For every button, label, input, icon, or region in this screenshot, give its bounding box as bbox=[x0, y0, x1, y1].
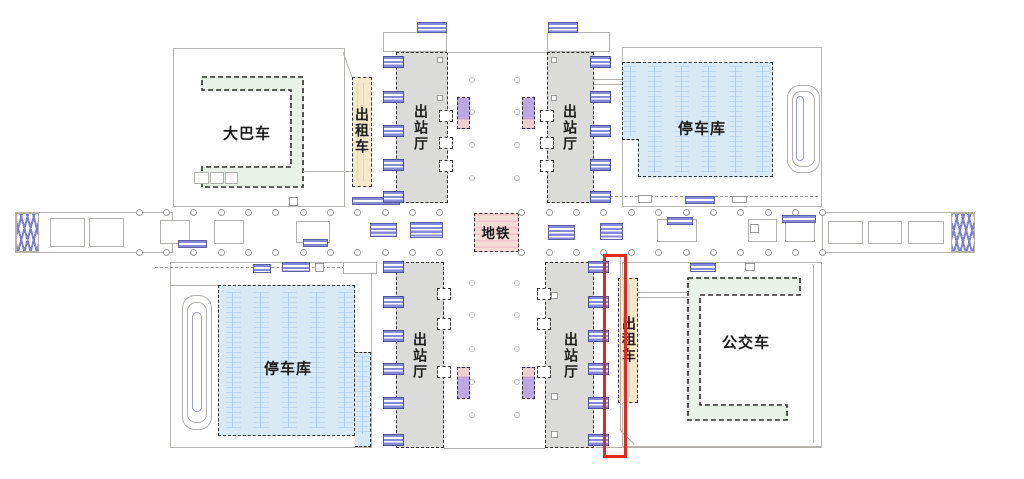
room bbox=[225, 172, 238, 184]
escalator-fixture-icon bbox=[410, 222, 443, 238]
escalator-fixture-icon bbox=[685, 196, 715, 204]
small-cabinet bbox=[551, 292, 558, 299]
stair-shaft bbox=[457, 97, 470, 129]
column-dot bbox=[136, 249, 143, 256]
column-dot bbox=[163, 209, 170, 216]
wall-line bbox=[638, 292, 688, 293]
label-metro: 地铁 bbox=[482, 222, 511, 242]
parking-stalls bbox=[310, 292, 325, 428]
stair-shaft bbox=[522, 367, 535, 399]
ramp-top-right bbox=[787, 85, 820, 173]
column-dot bbox=[546, 209, 553, 216]
column-dot bbox=[272, 209, 279, 216]
room bbox=[50, 218, 85, 247]
wall-notch bbox=[537, 288, 551, 300]
column-dot bbox=[190, 249, 197, 256]
column-dot bbox=[683, 209, 690, 216]
fare-gate-icon bbox=[383, 434, 404, 446]
ramp-bottom-left bbox=[182, 295, 212, 430]
fare-gate-icon bbox=[383, 363, 404, 375]
ramp-core bbox=[796, 96, 804, 161]
column-dot bbox=[354, 209, 361, 216]
parking-stalls bbox=[729, 66, 743, 173]
wall-notch bbox=[437, 288, 451, 300]
stair-shaft bbox=[457, 367, 470, 399]
fare-gate-icon bbox=[590, 191, 611, 203]
column-dot bbox=[573, 209, 580, 216]
column-dot bbox=[628, 209, 635, 216]
label-exit-hall-top-left: 出站厅 bbox=[411, 104, 431, 152]
wall-notch bbox=[437, 318, 451, 330]
column-dot bbox=[300, 209, 307, 216]
label-exit-hall-bottom-left: 出站厅 bbox=[410, 332, 430, 380]
column-dot bbox=[546, 249, 553, 256]
column-dot bbox=[436, 249, 443, 256]
column-dot bbox=[600, 209, 607, 216]
column-dot bbox=[272, 249, 279, 256]
column-dot bbox=[655, 249, 662, 256]
column-dot bbox=[819, 249, 826, 256]
column-dot bbox=[327, 209, 334, 216]
label-parking-top-right: 停车库 bbox=[678, 118, 726, 139]
room bbox=[89, 218, 124, 247]
column-dot bbox=[245, 209, 252, 216]
column-dot bbox=[218, 249, 225, 256]
ramp-core bbox=[192, 312, 202, 412]
wall-notch bbox=[537, 318, 551, 330]
column-dot bbox=[514, 379, 520, 385]
room bbox=[210, 172, 224, 184]
room bbox=[828, 221, 863, 244]
column-dot bbox=[163, 249, 170, 256]
escalator-zigzag-west-icon bbox=[16, 213, 39, 252]
wall-notch bbox=[439, 110, 453, 122]
column-dot bbox=[382, 209, 389, 216]
wall-notch bbox=[537, 366, 551, 378]
column-dot bbox=[514, 142, 520, 148]
fare-gate-icon bbox=[383, 296, 404, 308]
wall-line bbox=[170, 285, 218, 286]
column-dot bbox=[514, 77, 520, 83]
label-exit-hall-top-right: 出站厅 bbox=[560, 104, 580, 152]
column-dot bbox=[514, 346, 520, 352]
column-dot bbox=[514, 412, 520, 418]
small-cabinet bbox=[638, 195, 652, 203]
fare-gate-icon bbox=[383, 397, 404, 409]
small-cabinet bbox=[551, 95, 557, 101]
wall-line bbox=[594, 84, 622, 85]
small-cabinet bbox=[437, 57, 443, 63]
column-dot bbox=[469, 175, 475, 181]
room bbox=[383, 32, 447, 52]
column-dot bbox=[136, 209, 143, 216]
column-dot bbox=[792, 249, 799, 256]
fare-gate-icon bbox=[590, 56, 611, 68]
column-dot bbox=[409, 249, 416, 256]
label-bus: 公交车 bbox=[722, 332, 770, 353]
small-cabinet bbox=[315, 263, 324, 272]
wall-line bbox=[596, 447, 822, 448]
wall-notch bbox=[540, 137, 554, 149]
column-dot bbox=[683, 249, 690, 256]
parking-stalls bbox=[756, 66, 770, 173]
escalator-zigzag-east-icon bbox=[951, 213, 975, 252]
fare-gate-icon bbox=[383, 261, 404, 273]
room bbox=[343, 262, 377, 274]
room bbox=[908, 221, 944, 244]
fare-gate-icon bbox=[383, 125, 404, 137]
fare-gate-icon bbox=[383, 191, 404, 203]
small-cabinet bbox=[437, 95, 443, 101]
fare-gate-icon bbox=[383, 91, 404, 103]
column-dot bbox=[300, 249, 307, 256]
label-coach: 大巴车 bbox=[223, 123, 271, 144]
label-exit-hall-bottom-right: 出站厅 bbox=[561, 332, 581, 380]
column-dot bbox=[518, 249, 525, 256]
small-cabinet bbox=[289, 197, 298, 206]
wall-line bbox=[447, 52, 547, 53]
escalator-fixture-icon bbox=[282, 262, 310, 272]
column-dot bbox=[469, 412, 475, 418]
wall-notch bbox=[540, 160, 554, 172]
column-dot bbox=[765, 249, 772, 256]
label-taxi-top: 出租车 bbox=[352, 107, 372, 155]
parking-stalls bbox=[624, 66, 636, 136]
column-dot bbox=[710, 209, 717, 216]
escalator-fixture-icon bbox=[600, 223, 623, 240]
escalator-fixture-icon bbox=[303, 239, 328, 247]
escalator-fixture-icon bbox=[370, 223, 397, 237]
escalator-fixture-icon bbox=[690, 263, 716, 272]
column-dot bbox=[765, 209, 772, 216]
fare-gate-icon bbox=[383, 56, 404, 68]
small-cabinet bbox=[551, 57, 557, 63]
column-dot bbox=[245, 249, 252, 256]
small-cabinet bbox=[750, 224, 759, 233]
column-dot bbox=[518, 209, 525, 216]
column-dot bbox=[737, 249, 744, 256]
wall-notch bbox=[437, 366, 451, 378]
fare-gate-icon bbox=[383, 159, 404, 171]
column-dot bbox=[573, 249, 580, 256]
escalator-fixture-icon bbox=[178, 240, 207, 248]
escalator-fixture-icon bbox=[548, 22, 578, 33]
floor-plan: 大巴车 出租车 出站厅 出站厅 停车库 地铁 停车库 出站厅 出站厅 出租车 公… bbox=[0, 0, 1024, 479]
escalator-fixture-icon bbox=[667, 217, 693, 225]
label-parking-bottom-left: 停车库 bbox=[264, 358, 312, 379]
small-cabinet bbox=[732, 196, 747, 203]
wall-line bbox=[813, 265, 814, 443]
escalator-fixture-icon bbox=[782, 215, 816, 223]
wall-line bbox=[444, 448, 545, 449]
room bbox=[214, 220, 244, 244]
wall-notch bbox=[439, 160, 453, 172]
column-dot bbox=[710, 249, 717, 256]
stair-shaft bbox=[522, 97, 535, 129]
column-dot bbox=[382, 249, 389, 256]
column-dot bbox=[737, 209, 744, 216]
column-dot bbox=[218, 209, 225, 216]
highlight-rectangle bbox=[603, 254, 627, 458]
column-dot bbox=[354, 249, 361, 256]
fare-gate-icon bbox=[590, 159, 611, 171]
wall-notch bbox=[540, 110, 554, 122]
escalator-fixture-icon bbox=[417, 22, 447, 33]
column-dot bbox=[469, 346, 475, 352]
fare-gate-icon bbox=[590, 125, 611, 137]
column-dot bbox=[469, 77, 475, 83]
parking-stalls bbox=[648, 66, 662, 173]
column-dot bbox=[819, 209, 826, 216]
room bbox=[868, 221, 902, 244]
parking-stalls bbox=[226, 292, 241, 428]
wall-notch bbox=[439, 137, 453, 149]
column-dot bbox=[655, 209, 662, 216]
small-cabinet bbox=[551, 431, 558, 438]
fare-gate-icon bbox=[590, 91, 611, 103]
column-dot bbox=[514, 280, 520, 286]
column-dot bbox=[409, 209, 416, 216]
column-dot bbox=[190, 209, 197, 216]
parking-stalls bbox=[356, 356, 370, 434]
column-dot bbox=[469, 312, 475, 318]
column-dot bbox=[436, 209, 443, 216]
small-cabinet bbox=[551, 393, 558, 400]
room bbox=[194, 172, 209, 184]
column-dot bbox=[469, 280, 475, 286]
column-dot bbox=[469, 142, 475, 148]
slant-wall-line bbox=[343, 52, 352, 77]
parking-stalls bbox=[338, 292, 353, 428]
room bbox=[547, 32, 610, 52]
column-dot bbox=[514, 312, 520, 318]
column-dot bbox=[628, 249, 635, 256]
escalator-fixture-icon bbox=[253, 264, 271, 273]
column-dot bbox=[327, 249, 334, 256]
escalator-fixture-icon bbox=[548, 225, 575, 240]
fare-gate-icon bbox=[383, 330, 404, 342]
wall-line bbox=[638, 297, 688, 298]
wall-line bbox=[594, 79, 622, 80]
wall-line bbox=[303, 171, 352, 172]
column-dot bbox=[514, 109, 520, 115]
column-dot bbox=[514, 175, 520, 181]
small-cabinet bbox=[745, 263, 755, 271]
